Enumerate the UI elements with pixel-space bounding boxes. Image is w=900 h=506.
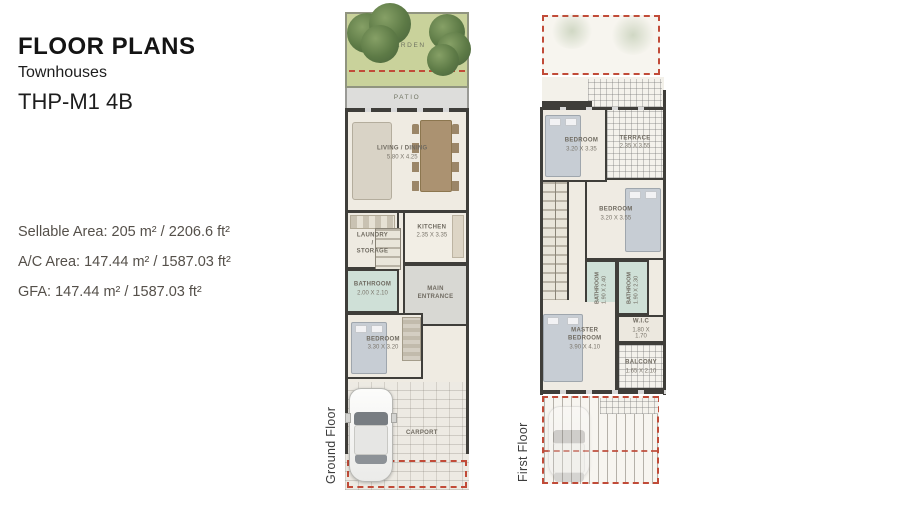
tree-shadow-graphic <box>610 15 656 55</box>
wall-segment <box>663 90 666 395</box>
kitchen-label: KITCHEN <box>416 224 447 232</box>
tile-patch-graphic <box>600 398 658 414</box>
chairs-graphic <box>452 124 459 192</box>
bed-graphic <box>543 314 583 382</box>
carport-label: CARPORT <box>406 430 438 438</box>
room-bedroom1: BEDROOM 3.20 X 3.35 <box>543 110 607 182</box>
room-master-bedroom: MASTER BEDROOM 3.90 X 4.10 <box>543 302 617 390</box>
stairs-graphic <box>375 228 401 270</box>
bathroom1-dims: 1.90 X 2.40 <box>602 272 608 304</box>
room-wic: W.I.C 1.80 X 1.70 <box>617 315 663 343</box>
ground-floor-label: Ground Floor <box>324 396 338 484</box>
main-entrance-label: MAIN ENTRANCE <box>418 286 454 302</box>
wall-segment <box>466 112 469 382</box>
room-patio: PATIO <box>345 88 469 108</box>
header-block: FLOOR PLANS Townhouses THP-M1 4B <box>18 33 196 115</box>
page-subtitle: Townhouses <box>18 64 196 82</box>
tree-shadow-graphic <box>550 13 594 49</box>
balcony-dims: 1.65 X 2.10 <box>625 369 657 375</box>
ground-floor-plan: GARDEN PATIO LIVING / D <box>345 12 469 490</box>
area-stats: Sellable Area: 205 m² / 2206.6 ft² A/C A… <box>18 224 231 314</box>
ac-area: A/C Area: 147.44 m² / 1587.03 ft² <box>18 254 231 270</box>
bathroom1-label: BATHROOM <box>595 272 601 304</box>
sellable-area: Sellable Area: 205 m² / 2206.6 ft² <box>18 224 231 240</box>
sofa-graphic <box>352 122 392 200</box>
terrace-dims: 2.35 X 3.55 <box>619 144 650 150</box>
floorplan-page: FLOOR PLANS Townhouses THP-M1 4B Sellabl… <box>0 0 900 506</box>
bathroom2-dims: 1.90 X 2.30 <box>634 272 640 304</box>
room-bathroom2: BATHROOM 1.90 X 2.30 <box>617 260 649 315</box>
kitchen-counter-graphic <box>452 215 464 258</box>
tree-graphic <box>347 3 411 65</box>
shelves-graphic <box>350 215 395 229</box>
unit-model: THP-M1 4B <box>18 89 196 115</box>
wall-segment <box>466 382 469 454</box>
room-bedroom2: BEDROOM 3.20 X 3.55 <box>585 182 663 260</box>
bathroom2-label: BATHROOM <box>627 272 633 304</box>
patio-label: PATIO <box>394 94 421 102</box>
tree-graphic <box>427 14 471 80</box>
gfa-area: GFA: 147.44 m² / 1587.03 ft² <box>18 284 231 300</box>
car-graphic <box>349 388 393 482</box>
wic-label: W.I.C <box>630 319 652 327</box>
bed-graphic <box>351 322 387 374</box>
page-title: FLOOR PLANS <box>18 33 196 61</box>
wall-segment <box>540 390 666 394</box>
bathroom-ground-label: BATHROOM <box>354 282 391 290</box>
chairs-graphic <box>412 124 419 192</box>
bed-graphic <box>625 188 661 252</box>
car-ghost-graphic <box>548 406 590 480</box>
first-floor-plan: BEDROOM 3.20 X 3.35 TERRACE 2.35 X 3.55 … <box>540 15 666 490</box>
terrace-strip <box>542 77 664 107</box>
dining-table-graphic <box>420 120 452 192</box>
first-floor-label: First Floor <box>516 407 530 482</box>
bathroom-ground-dims: 2.00 X 2.10 <box>354 291 391 297</box>
stairs-graphic <box>543 182 569 300</box>
wardrobe-graphic <box>402 317 421 361</box>
open-area-over-carport <box>542 396 659 484</box>
room-terrace: TERRACE 2.35 X 3.55 <box>607 110 663 180</box>
terrace-label: TERRACE <box>619 135 650 143</box>
terrace-tiles-graphic <box>588 79 662 107</box>
void-over-garden <box>542 15 660 75</box>
kitchen-dims: 2.35 X 3.35 <box>416 233 447 239</box>
room-balcony: BALCONY 1.65 X 2.10 <box>617 343 663 390</box>
room-living-dining: LIVING / DINING 5.80 X 4.25 <box>348 112 466 210</box>
bed-graphic <box>545 115 581 177</box>
room-bathroom-ground: BATHROOM 2.00 X 2.10 <box>348 269 399 313</box>
balcony-label: BALCONY <box>625 360 657 368</box>
room-bedroom-ground: BEDROOM 3.30 X 3.20 <box>348 313 423 379</box>
room-kitchen: KITCHEN 2.35 X 3.35 <box>403 213 466 264</box>
wic-dims: 1.80 X 1.70 <box>630 327 652 339</box>
room-carport: CARPORT <box>345 382 469 490</box>
